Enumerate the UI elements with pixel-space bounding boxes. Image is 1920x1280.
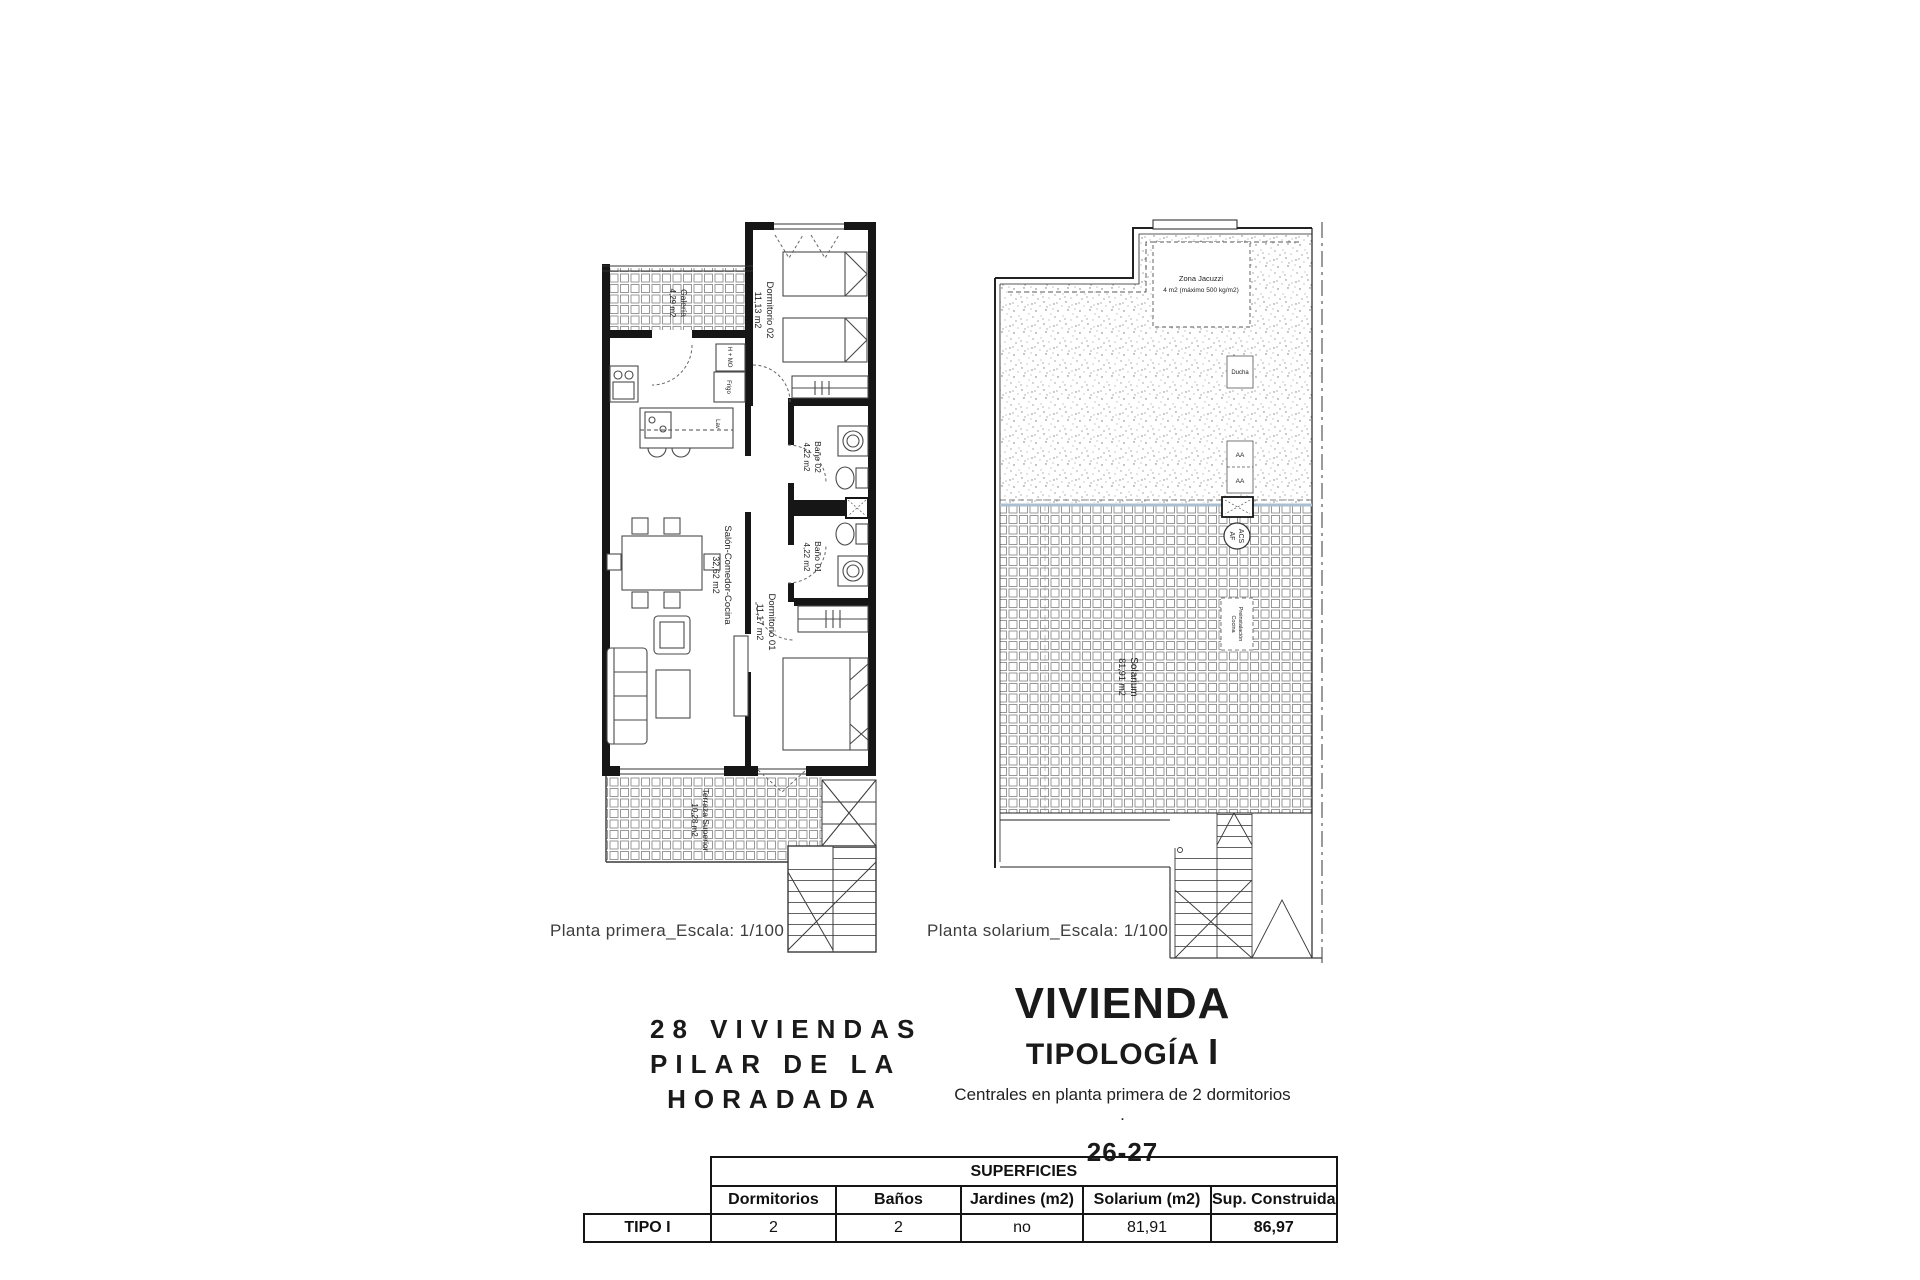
hmo-text: H + MO xyxy=(726,347,732,368)
value-banos: 2 xyxy=(836,1214,961,1242)
vivienda-title-block: VIVIENDA TIPOLOGÍA I Centrales en planta… xyxy=(950,982,1295,1168)
superficies-table: SUPERFICIES Dormitorios Baños Jardines (… xyxy=(583,1156,1338,1243)
col-sup-construida: Sup. Construida xyxy=(1211,1186,1337,1214)
ducha-text: Ducha xyxy=(1231,370,1249,376)
lav-text: Lav xyxy=(714,419,720,429)
tipologia-letter: I xyxy=(1208,1031,1219,1072)
aa-bottom-text: AA xyxy=(1236,478,1245,485)
table-title: SUPERFICIES xyxy=(711,1157,1337,1186)
salon-name: Salón-Comedor-Cocina xyxy=(722,525,733,625)
hmo-label: H + MO xyxy=(726,347,732,368)
af-text: AF xyxy=(1228,532,1235,541)
col-banos: Baños xyxy=(836,1186,961,1214)
preinstalacion-text-1: Preinstalación xyxy=(1237,607,1243,642)
jacuzzi-note: 4 m2 (máximo 500 kg/m2) xyxy=(1163,287,1239,294)
vivienda-description: Centrales en planta primera de 2 dormito… xyxy=(950,1085,1295,1125)
bano01-area: 4,22 m2 xyxy=(802,543,811,572)
project-line-2: PILAR DE LA xyxy=(650,1047,900,1082)
preinstalacion-text-2: Cocina xyxy=(1230,615,1236,633)
bano02-label: Baño 02 4,22 m2 xyxy=(802,441,823,473)
jacuzzi-name: Zona Jacuzzi xyxy=(1179,274,1224,283)
value-sup-construida: 86,97 xyxy=(1211,1214,1337,1242)
bano02-name: Baño 02 xyxy=(813,441,823,473)
tipologia-text: TIPOLOGÍA xyxy=(1026,1038,1199,1071)
col-jardines: Jardines (m2) xyxy=(961,1186,1083,1214)
preinstalacion-box: Preinstalación Cocina xyxy=(1221,598,1253,650)
tipologia-subheading: TIPOLOGÍA I xyxy=(950,1031,1295,1073)
dormitorio01-name: Dormitorio 01 xyxy=(766,593,777,650)
frigo-text: Frigo xyxy=(725,380,731,394)
salon-label: Salón-Comedor-Cocina 32,62 m2 xyxy=(711,525,733,625)
dormitorio02-label: Dormitorio 02 11,13 m2 xyxy=(753,281,775,338)
ducha-box: Ducha xyxy=(1227,356,1253,388)
bano02-area: 4,22 m2 xyxy=(802,443,811,472)
col-solarium: Solarium (m2) xyxy=(1083,1186,1211,1214)
terraza-area: 10,28 m2 xyxy=(690,803,699,837)
dormitorio02-name: Dormitorio 02 xyxy=(764,281,775,338)
solarium-shaft xyxy=(1222,497,1253,517)
table-header-row: Dormitorios Baños Jardines (m2) Solarium… xyxy=(584,1186,1337,1214)
project-line-1: 28 VIVIENDAS xyxy=(650,1012,900,1047)
value-solarium: 81,91 xyxy=(1083,1214,1211,1242)
value-dormitorios: 2 xyxy=(711,1214,836,1242)
caption-planta-primera: Planta primera_Escala: 1/100 xyxy=(550,921,784,941)
aa-top-text: AA xyxy=(1236,452,1245,459)
row-label-tipo: TIPO I xyxy=(584,1214,711,1242)
vivienda-heading: VIVIENDA xyxy=(950,982,1295,1026)
caption-planta-solarium: Planta solarium_Escala: 1/100 xyxy=(927,921,1168,941)
jacuzzi-zone: Zona Jacuzzi 4 m2 (máximo 500 kg/m2) xyxy=(1153,242,1250,327)
solarium-floor xyxy=(1000,505,1312,813)
kitchen-furniture xyxy=(610,344,745,457)
salon-area: 32,62 m2 xyxy=(711,556,721,594)
solarium-name: Solarium xyxy=(1128,657,1139,696)
floor-plan-primera: Galería 4,29 m2 Dormitorio 02 11,13 m2 S… xyxy=(560,160,900,990)
frigo-label: Frigo xyxy=(725,380,731,394)
project-line-3: HORADADA xyxy=(650,1082,900,1117)
dormitorio01-label: Dormitorio 01 11,17 m2 xyxy=(755,593,777,650)
solarium-area: 81,91 m2 xyxy=(1117,658,1127,696)
bano01-label: Baño 01 4,22 m2 xyxy=(802,541,823,573)
galeria-area: 4,29 m2 xyxy=(668,289,677,318)
terraza-name: Terraza Superior xyxy=(701,789,711,852)
galeria-name: Galería xyxy=(679,289,689,317)
bano01-name: Baño 01 xyxy=(813,541,823,573)
table-title-row: SUPERFICIES xyxy=(584,1157,1337,1186)
lav-label: Lav xyxy=(714,419,720,429)
acs-text: ACS xyxy=(1237,529,1244,544)
value-jardines: no xyxy=(961,1214,1083,1242)
aa-units: AA AA xyxy=(1227,441,1253,493)
shaft-box xyxy=(846,498,868,518)
table-data-row: TIPO I 2 2 no 81,91 86,97 xyxy=(584,1214,1337,1242)
stairs-solarium xyxy=(1170,813,1322,958)
acs-unit: ACS AF xyxy=(1224,523,1250,549)
project-title-block: 28 VIVIENDAS PILAR DE LA HORADADA xyxy=(650,1012,900,1117)
col-dormitorios: Dormitorios xyxy=(711,1186,836,1214)
floor-plan-solarium: Zona Jacuzzi 4 m2 (máximo 500 kg/m2) Duc… xyxy=(955,200,1345,990)
dormitorio02-area: 11,13 m2 xyxy=(753,292,763,329)
dormitorio01-area: 11,17 m2 xyxy=(755,604,765,641)
